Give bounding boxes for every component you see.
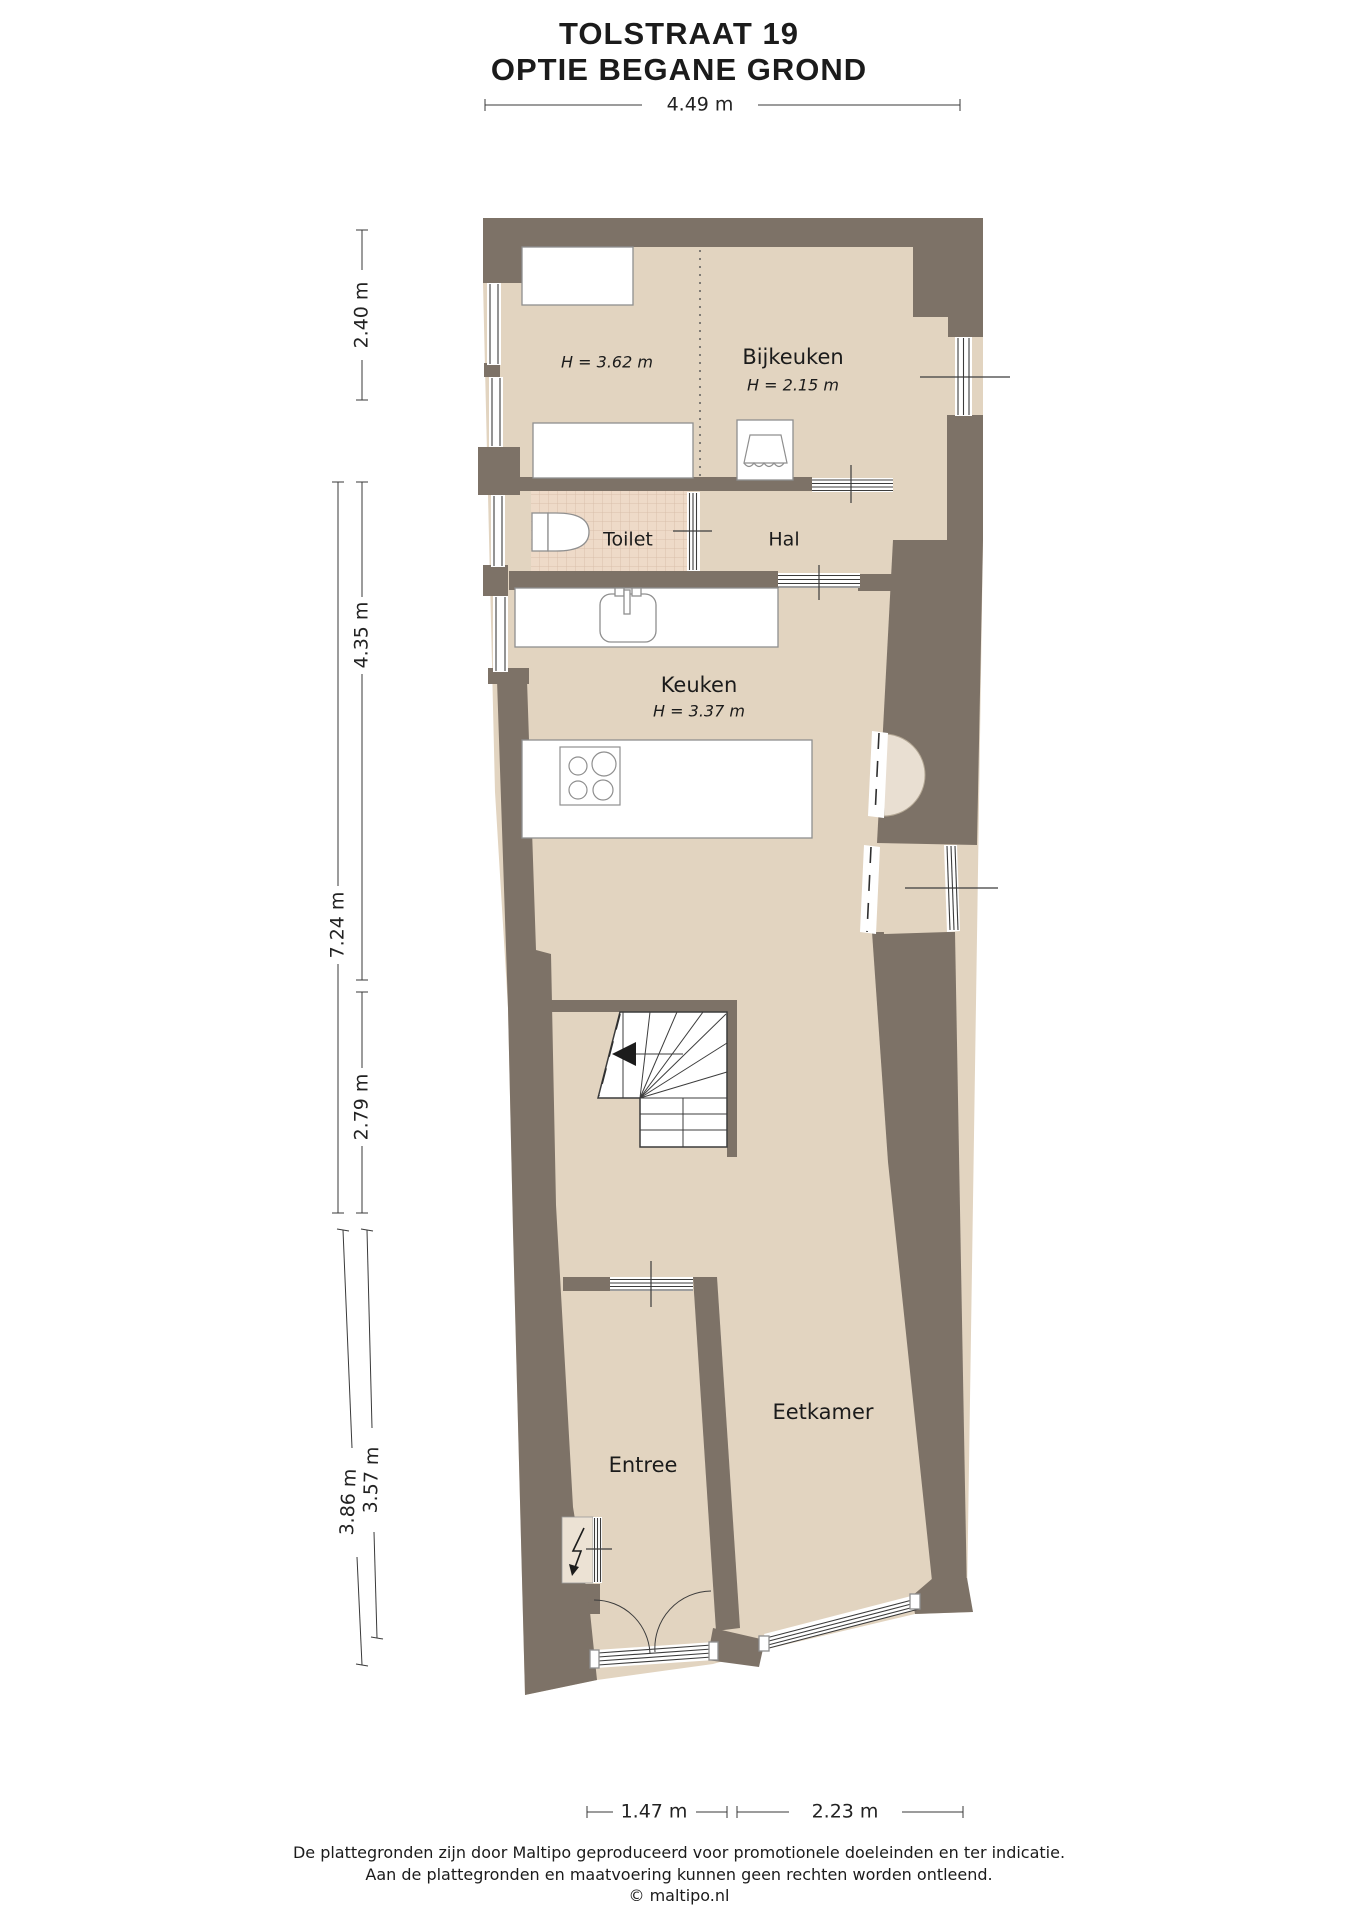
dim-279-label: 2.79 m [351, 1074, 373, 1141]
keuken-top-wall [509, 571, 778, 590]
footer-copyright: © maltipo.nl [629, 1886, 730, 1905]
floorplan-drawing: TOLSTRAAT 19 OPTIE BEGANE GROND [0, 0, 1358, 1920]
right-wall-below-window [947, 415, 983, 540]
bijkeuken-counter-top [522, 247, 633, 305]
keuken-top-wall-stub [858, 574, 897, 591]
dim-386-label: 3.86 m [336, 1468, 361, 1536]
keuken-height-label: H = 3.37 m [653, 702, 745, 721]
sink-icon [600, 588, 656, 642]
left-wall-sill-1 [484, 363, 500, 377]
kitchen-island [522, 740, 812, 838]
room-label-toilet: Toilet [602, 529, 653, 551]
page-title: TOLSTRAAT 19 [559, 16, 799, 51]
dim-357-label: 3.57 m [360, 1446, 384, 1513]
kitchen-sink-counter [515, 588, 778, 647]
room-label-eetkamer: Eetkamer [772, 1400, 873, 1424]
dim-435-label: 4.35 m [351, 602, 373, 669]
floorplan-page: TOLSTRAAT 19 OPTIE BEGANE GROND [0, 0, 1358, 1920]
dimension-top: 4.49 m [485, 94, 960, 116]
entree-wall-left-of-door [563, 1277, 610, 1291]
stair-right-wall [727, 1012, 737, 1157]
dimension-left-435: 4.35 m [351, 482, 373, 980]
room-label-keuken: Keuken [661, 673, 738, 697]
left-wall-chunk-2 [483, 565, 508, 596]
stair-top-wall [548, 1000, 737, 1012]
room-label-entree: Entree [609, 1453, 678, 1477]
dim-240-label: 2.40 m [351, 282, 373, 349]
toilet-fixture [532, 513, 589, 551]
dim-147-label: 1.47 m [621, 1801, 688, 1823]
room-label-bijkeuken: Bijkeuken [742, 345, 843, 369]
footer-disclaimer-line1: De plattegronden zijn door Maltipo gepro… [293, 1843, 1065, 1862]
dimension-bottom-223: 2.23 m [737, 1801, 963, 1823]
dimension-left-724: 7.24 m [327, 482, 349, 1213]
dimension-left-279: 2.79 m [351, 992, 373, 1213]
dimension-left-240: 2.40 m [351, 230, 373, 400]
dimension-left-357: 3.57 m [360, 1229, 384, 1639]
side-alcove-floor [880, 845, 948, 934]
dim-top-label: 4.49 m [667, 94, 734, 116]
toilet-icon [548, 513, 589, 551]
dim-223-label: 2.23 m [812, 1801, 879, 1823]
footer-disclaimer-line2: Aan de plattegronden en maatvoering kunn… [365, 1865, 992, 1884]
dimension-bottom-147: 1.47 m [587, 1801, 727, 1823]
left-zone-height-label: H = 3.62 m [561, 353, 653, 372]
left-wall-chunk-1 [478, 447, 520, 495]
page-subtitle: OPTIE BEGANE GROND [491, 52, 867, 87]
room-label-hal: Hal [768, 529, 799, 551]
washing-machine [737, 420, 793, 480]
bijkeuken-counter-bottom [533, 423, 693, 478]
bijkeuken-height-label: H = 2.15 m [747, 376, 839, 395]
dim-724-label: 7.24 m [327, 892, 349, 959]
